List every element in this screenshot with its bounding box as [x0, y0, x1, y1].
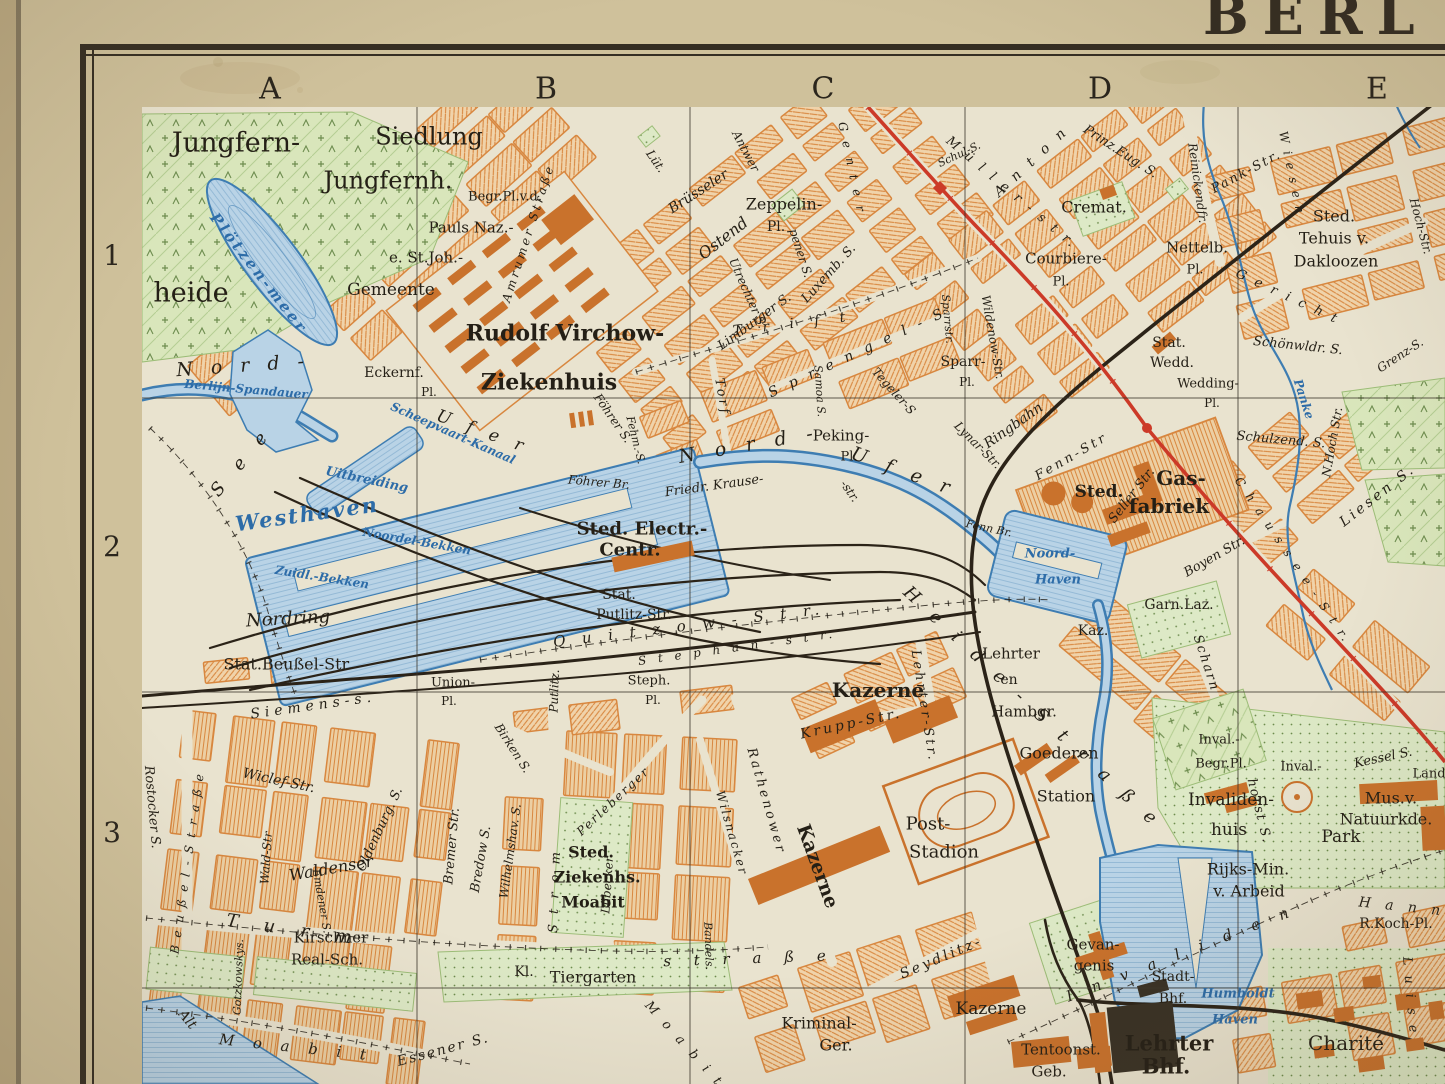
- map-label: Humboldt: [1200, 987, 1274, 1002]
- map-label: heide: [153, 277, 228, 308]
- map-label: huis: [1211, 820, 1247, 840]
- map-label: Charité: [1308, 1031, 1384, 1055]
- map-label: Pl.: [1052, 275, 1069, 290]
- grid-row-label: 2: [103, 530, 121, 563]
- map-label: Bhf.: [1159, 991, 1187, 1007]
- map-label: Zeppelin-: [746, 195, 822, 214]
- map-label: Pl.: [1204, 396, 1220, 410]
- map-label: Rijks-Min.: [1207, 860, 1289, 879]
- map-label: Stat.Beußel-Str.: [223, 655, 352, 674]
- map-label: Pl.: [959, 375, 975, 389]
- map-label: Stadion: [909, 841, 979, 862]
- map-label: R.Koch-Pl.: [1359, 916, 1432, 932]
- map-label: Lehrter: [1125, 1030, 1215, 1055]
- map-label: Sted.: [1313, 207, 1355, 226]
- map-label: Noord-: [1024, 547, 1076, 562]
- map-label: Cremat.: [1061, 198, 1127, 217]
- map-label: Land: [1412, 767, 1445, 782]
- grid-row-label: 3: [103, 816, 121, 849]
- map-label: Inval.-: [1198, 733, 1239, 748]
- map-label: Stat.: [602, 587, 636, 603]
- map-label: Wedding-: [1177, 377, 1239, 392]
- map-label: Tiergarten: [550, 968, 637, 987]
- map-sheet: BERL ABCDE123 Jungfern-heideSiedlungJung…: [0, 0, 1445, 1084]
- map-label: Pl.: [441, 694, 457, 708]
- map-label: Pl.: [767, 219, 785, 235]
- map-label: Station: [1037, 787, 1095, 806]
- map-label: Jungfernh.: [321, 166, 453, 194]
- map-label: Ziekenhs.: [553, 868, 640, 887]
- grid-column-label: D: [1088, 72, 1112, 107]
- map-label: Pl.: [421, 385, 437, 399]
- map-label: Real-Sch.: [291, 950, 363, 968]
- map-label: Pl.: [1186, 263, 1203, 278]
- grid-column-label: E: [1366, 72, 1388, 107]
- map-label: Putlitz.: [546, 669, 562, 714]
- map-label: Ziekenhuis: [481, 370, 617, 396]
- map-label: Inval.-: [1280, 760, 1321, 775]
- map-label: Kriminal-: [781, 1014, 856, 1033]
- map-label: Gemeente: [347, 280, 435, 300]
- map-label: Dakloozen: [1294, 252, 1379, 271]
- map-label: Post-: [906, 813, 951, 834]
- map-label: v. Arbeid: [1212, 882, 1285, 901]
- map-label: Kl.: [514, 964, 533, 980]
- map-label: Stat.: [1152, 335, 1186, 351]
- map-label: S t r o m: [546, 849, 564, 934]
- map-label: Begr.Pl.: [1195, 757, 1247, 772]
- map-label: Pl.: [645, 693, 661, 707]
- map-label: Gas-: [1156, 466, 1206, 490]
- map-label: Bhf.: [1142, 1053, 1191, 1078]
- map-label: Nettelb.: [1166, 238, 1228, 256]
- map-label: Pauls Naz.-: [428, 218, 513, 236]
- map-label: Tentoonst.: [1021, 1040, 1101, 1058]
- map-label: Nordring: [244, 606, 330, 631]
- map-label: Eckernf.: [364, 365, 424, 381]
- grid-row-label: 1: [103, 239, 121, 272]
- map-label: Mus.v.: [1365, 789, 1417, 808]
- grid-column-label: C: [812, 72, 835, 107]
- grid-column-label: A: [258, 72, 281, 107]
- map-label: Sparr-: [940, 354, 985, 370]
- map-label: Kazerne: [832, 678, 924, 702]
- map-label: Sted. Electr.-: [577, 518, 708, 539]
- map-label: Courbiere-: [1025, 249, 1107, 267]
- map-label: Wedd.: [1150, 355, 1194, 371]
- map-label: Siedlung: [375, 122, 483, 150]
- grid-column-label: B: [535, 72, 557, 107]
- map-label: Park: [1321, 827, 1361, 847]
- map-label: Garn.Laz.: [1144, 597, 1213, 613]
- map-label: Kazerne: [956, 999, 1027, 1019]
- map-label: Steph.: [628, 674, 671, 689]
- map-label: Kaz.: [1078, 623, 1109, 639]
- map-label: Sted.: [1075, 482, 1124, 502]
- map-label: Rudolf Virchow-: [466, 321, 665, 347]
- map-label: Ger.: [819, 1036, 852, 1055]
- map-label: Haven: [1034, 573, 1081, 588]
- map-label: Haven: [1211, 1013, 1258, 1028]
- map-label: Gevan-: [1066, 935, 1119, 953]
- map-label: Peking-: [813, 426, 870, 444]
- map-label: Centr.: [599, 539, 660, 560]
- map-label: Tehuis v.: [1299, 229, 1369, 248]
- map-label: Geb.: [1031, 1062, 1066, 1080]
- map-label: Gotzkowskys.: [231, 939, 247, 1015]
- map-label: Jungfern-: [169, 127, 300, 158]
- map-label: Union-: [431, 676, 475, 691]
- map-label: Moabit: [561, 893, 625, 912]
- map-label: fabriek: [1129, 494, 1210, 518]
- map-label: e. St.Joh.-: [389, 248, 463, 266]
- map-title: BERL: [1203, 0, 1429, 47]
- map-label: Natuurkde.: [1340, 810, 1433, 829]
- map-image: BERL ABCDE123 Jungfern-heideSiedlungJung…: [0, 0, 1445, 1084]
